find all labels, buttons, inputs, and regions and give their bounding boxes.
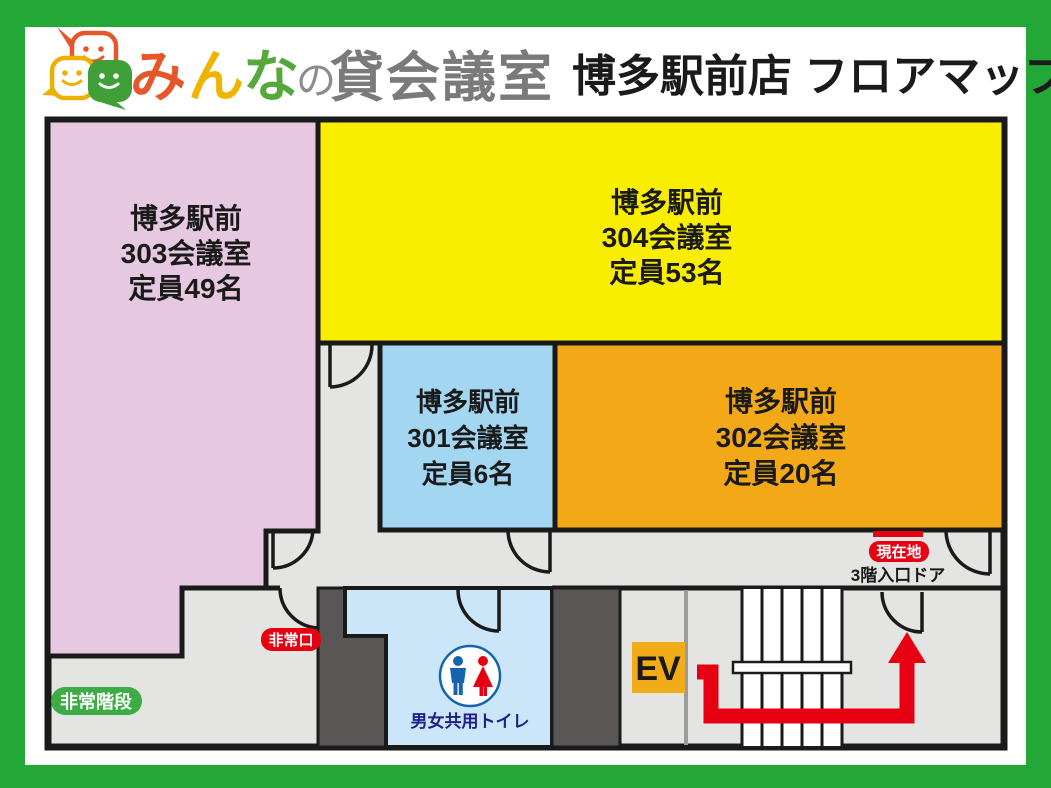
solid-wall-block-right xyxy=(552,588,620,747)
toilet-label: 男女共用トイレ xyxy=(411,711,530,731)
woman-icon xyxy=(478,656,488,666)
floor-plan: EV 現在地 3階入口ドア 非常口 非常階段 男女共用トイレ xyxy=(48,120,1004,747)
entrance-door-mark xyxy=(873,531,923,537)
room-303-label: 博多駅前 303会議室 定員49名 xyxy=(121,202,252,304)
frame-left xyxy=(0,0,25,788)
svg-text:定員20名: 定員20名 xyxy=(723,457,838,489)
header: み ん な の 貸会議室 博多駅前店 フロアマップ xyxy=(42,27,1051,110)
svg-text:定員6名: 定員6名 xyxy=(422,459,514,489)
emergency-exit-label: 非常口 xyxy=(268,631,313,649)
entrance-door-label: 3階入口ドア xyxy=(851,566,945,585)
elevator-label: EV xyxy=(635,650,681,688)
room-301-label: 博多駅前 301会議室 定員6名 xyxy=(407,387,528,489)
svg-text:博多駅前: 博多駅前 xyxy=(416,387,520,417)
man-icon xyxy=(453,656,463,666)
svg-text:博多駅前: 博多駅前 xyxy=(611,186,723,218)
svg-text:304会議室: 304会議室 xyxy=(602,221,733,253)
page-title: 博多駅前店 フロアマップ xyxy=(572,52,1051,101)
svg-text:303会議室: 303会議室 xyxy=(121,237,252,269)
stair-landing xyxy=(733,662,851,673)
room-302-label: 博多駅前 302会議室 定員20名 xyxy=(716,385,847,489)
brand-suffix: 貸会議室 xyxy=(330,48,554,108)
svg-text:博多駅前: 博多駅前 xyxy=(130,202,242,234)
green-bubble xyxy=(88,60,132,102)
svg-text:301会議室: 301会議室 xyxy=(407,423,528,453)
svg-text:302会議室: 302会議室 xyxy=(716,421,847,453)
frame-right xyxy=(1026,0,1051,788)
logo-bubbles-icon xyxy=(42,27,132,110)
frame-bottom xyxy=(0,765,1051,788)
svg-text:博多駅前: 博多駅前 xyxy=(725,385,837,417)
svg-text:定員49名: 定員49名 xyxy=(128,272,243,304)
svg-text:定員53名: 定員53名 xyxy=(609,256,724,288)
floor-map-page: み ん な の 貸会議室 博多駅前店 フロアマップ xyxy=(0,0,1051,788)
emergency-stairs-label: 非常階段 xyxy=(60,691,133,712)
floor-map-canvas: み ん な の 貸会議室 博多駅前店 フロアマップ xyxy=(0,0,1051,788)
brand-name: み ん な xyxy=(130,45,299,108)
yellow-bubble xyxy=(52,58,94,98)
frame-top xyxy=(0,0,1051,27)
current-location-label: 現在地 xyxy=(876,543,921,561)
room-304-label: 博多駅前 304会議室 定員53名 xyxy=(602,186,733,288)
toilet-icon xyxy=(440,646,500,706)
